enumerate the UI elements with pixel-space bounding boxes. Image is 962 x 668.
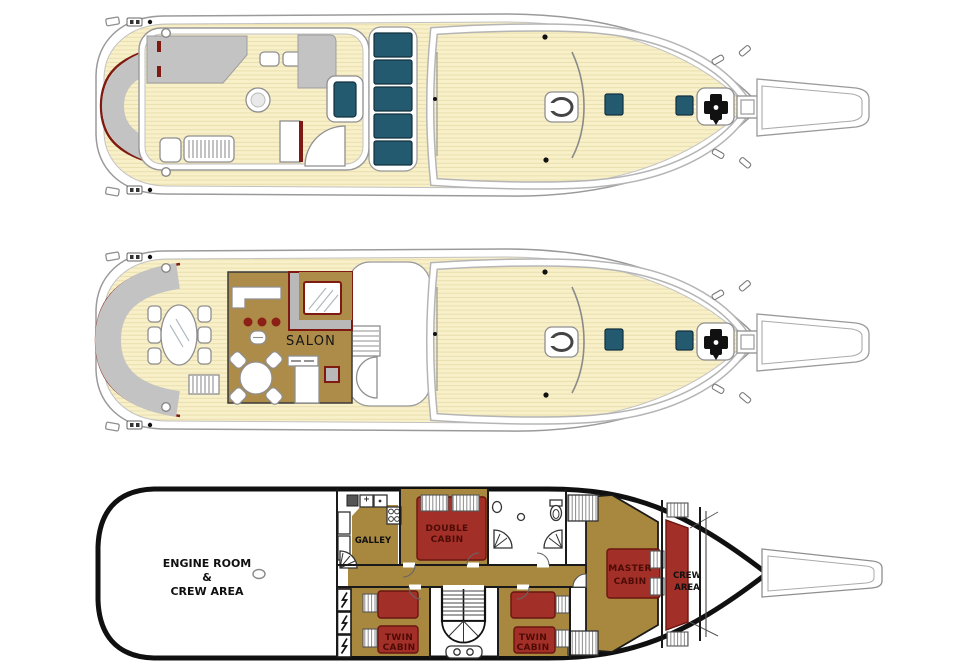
salon: SALON [228,272,352,406]
electrical-bolt-icons [338,589,352,657]
pillow [556,596,570,613]
pillow [421,495,448,511]
master-cabin-label-line1: MASTER [608,564,651,574]
yacht-deck-plans: SALON ENGINE ROOM [0,0,962,668]
chair [198,327,211,343]
vent-icon [250,331,266,344]
stove-icon [387,507,401,524]
wheelhouse-front [348,262,430,406]
pillow [452,495,479,511]
framed-panel [325,367,339,382]
chair [148,327,161,343]
flybridge-stairs [280,121,303,162]
double-cabin-label-line1: DOUBLE [426,524,469,534]
twin-cabin-mid-label-line2: CABIN [517,643,550,653]
wardrobe [568,495,598,521]
salon-cabinet [295,366,319,403]
twin-cabin-aft-label-line2: CABIN [383,643,416,653]
sun-pad-cushion-mark [157,66,161,77]
chair [198,306,211,322]
main-staircase [442,587,485,643]
wardrobe [568,631,598,655]
deck-plan-svg: SALON ENGINE ROOM [0,0,962,668]
engine-room-label-line3: CREW AREA [170,585,244,598]
sun-lounger [160,136,234,162]
twin-bed [511,592,555,618]
master-cabin-label-line2: CABIN [614,577,647,587]
helm-console [327,76,363,122]
twin-cabin-mid-label-line1: TWIN [519,633,547,643]
engine-hatch-icon [253,570,265,579]
sideboard [288,356,318,366]
pillow [363,594,377,612]
pillow [667,503,688,517]
chair [148,348,161,364]
aft-deck-stairs [189,375,219,394]
salon-label: SALON [286,334,336,349]
double-cabin-bed: DOUBLE CABIN [417,495,486,560]
bar-stools [244,318,281,327]
crew-area-label-line2: AREA [674,583,700,593]
stairs-down [352,326,380,356]
twin-vanity [446,646,482,658]
bowsprit [762,549,882,597]
pillow [667,632,688,646]
toilet-icon [550,500,562,521]
aft-dining-table [148,305,211,365]
twin-cabin-aft-label-line1: TWIN [385,633,413,643]
windshield-panels [369,27,417,171]
galley-sink-icon [347,495,358,506]
pillow [556,630,570,647]
flybridge-enclosure [139,28,369,170]
chair [198,348,211,364]
fridge-icon [338,512,350,534]
crew-area-label-line1: CREW [673,571,702,581]
chair [148,306,161,322]
pillow [363,629,377,647]
master-cabin: MASTER CABIN [607,549,664,598]
engine-room-label-line1: ENGINE ROOM [163,557,252,570]
sun-pad-cushion-mark [157,41,161,52]
mirror-unit [289,272,352,330]
double-cabin-label-line2: CABIN [431,535,464,545]
engine-room-label-line2: & [202,571,212,584]
galley-label: GALLEY [355,536,392,546]
sink-icon [518,514,525,521]
sun-deck-plan [96,14,869,196]
sink-icon [493,502,502,513]
stool [260,52,279,66]
main-deck-plan: SALON [96,249,869,431]
lower-deck-plan: ENGINE ROOM & CREW AREA [98,489,882,658]
